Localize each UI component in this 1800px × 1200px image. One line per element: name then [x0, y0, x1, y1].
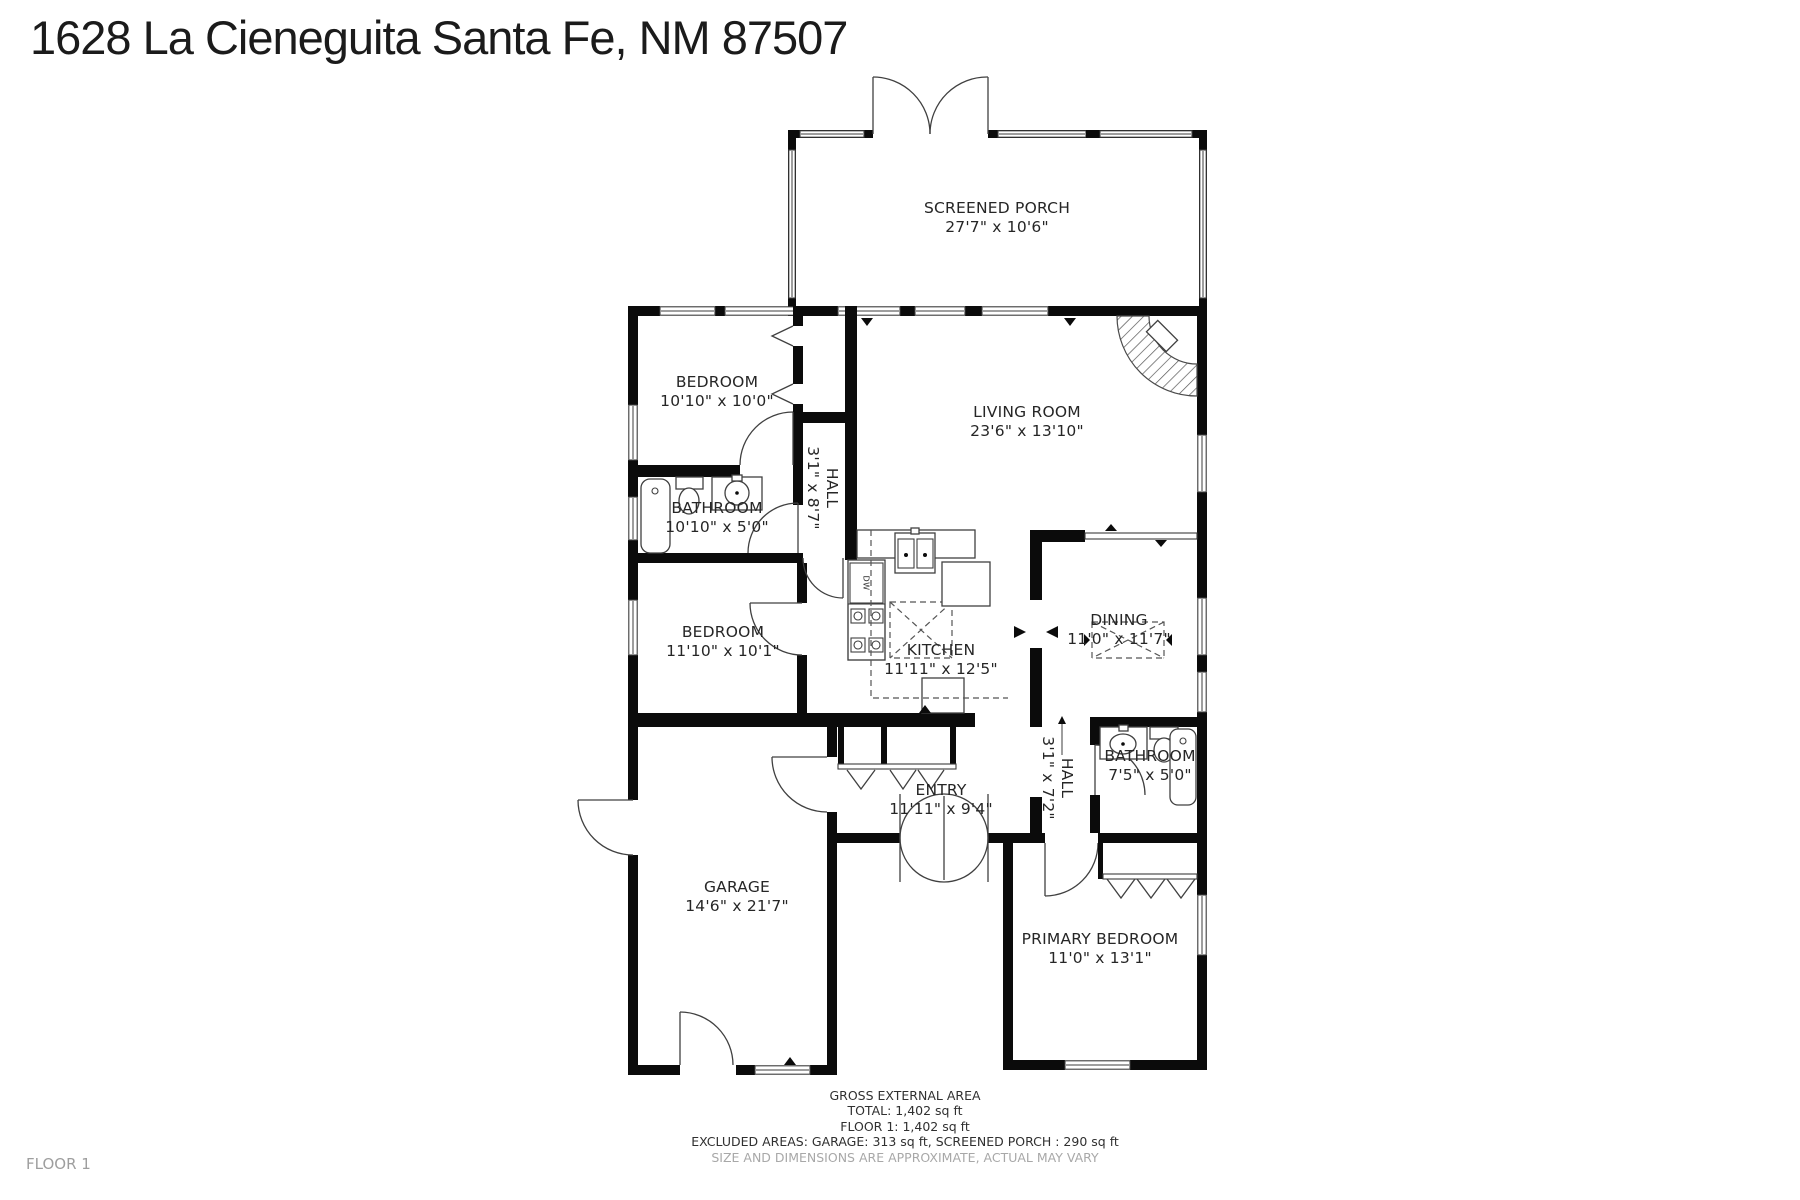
- floorplan-page: 1628 La Cieneguita Santa Fe, NM 87507 SC…: [0, 0, 1800, 1200]
- room-dims: 11'0" x 11'7": [1067, 630, 1171, 649]
- room-dims: 11'11" x 12'5": [884, 660, 998, 679]
- room-dims: 11'0" x 13'1": [1022, 949, 1179, 968]
- room-name: BEDROOM: [666, 623, 780, 642]
- room-label-bathroom-1: BATHROOM 10'10" x 5'0": [665, 499, 769, 537]
- floorplan-drawing: [0, 0, 1800, 1200]
- room-name: LIVING ROOM: [970, 403, 1084, 422]
- room-name: SCREENED PORCH: [924, 199, 1070, 218]
- room-label-living-room: LIVING ROOM 23'6" x 13'10": [970, 403, 1084, 441]
- page-title: 1628 La Cieneguita Santa Fe, NM 87507: [30, 10, 847, 65]
- room-label-kitchen: KITCHEN 11'11" x 12'5": [884, 641, 998, 679]
- room-label-primary-bedroom: PRIMARY BEDROOM 11'0" x 13'1": [1022, 930, 1179, 968]
- room-name: HALL: [822, 446, 841, 529]
- room-dims: 10'10" x 10'0": [660, 392, 774, 411]
- room-label-hall-2: HALL 3'1" x 7'2": [1038, 736, 1076, 819]
- room-name: KITCHEN: [884, 641, 998, 660]
- room-label-screened-porch: SCREENED PORCH 27'7" x 10'6": [924, 199, 1070, 237]
- room-label-bathroom-2: BATHROOM 7'5" x 5'0": [1104, 747, 1195, 785]
- room-name: DINING: [1067, 611, 1171, 630]
- fireplace: [1117, 316, 1197, 396]
- floor-tag: FLOOR 1: [26, 1155, 91, 1173]
- room-dims: 27'7" x 10'6": [924, 218, 1070, 237]
- dishwasher-label: DW: [862, 575, 871, 590]
- room-label-bedroom-1: BEDROOM 10'10" x 10'0": [660, 373, 774, 411]
- room-dims: 10'10" x 5'0": [665, 518, 769, 537]
- room-dims: 3'1" x 7'2": [1038, 736, 1057, 819]
- room-dims: 7'5" x 5'0": [1104, 766, 1195, 785]
- room-label-dining: DINING 11'0" x 11'7": [1067, 611, 1171, 649]
- area-disclaimer: SIZE AND DIMENSIONS ARE APPROXIMATE, ACT…: [691, 1150, 1119, 1165]
- room-name: BATHROOM: [1104, 747, 1195, 766]
- room-dims: 23'6" x 13'10": [970, 422, 1084, 441]
- room-dims: 11'10" x 10'1": [666, 642, 780, 661]
- room-name: BEDROOM: [660, 373, 774, 392]
- room-label-garage: GARAGE 14'6" x 21'7": [685, 878, 789, 916]
- room-name: HALL: [1057, 736, 1076, 819]
- room-dims: 11'11" x 9'4": [889, 800, 993, 819]
- room-name: GARAGE: [685, 878, 789, 897]
- area-total: TOTAL: 1,402 sq ft: [691, 1103, 1119, 1118]
- room-label-bedroom-2: BEDROOM 11'10" x 10'1": [666, 623, 780, 661]
- room-label-entry: ENTRY 11'11" x 9'4": [889, 781, 993, 819]
- area-summary: GROSS EXTERNAL AREA TOTAL: 1,402 sq ft F…: [691, 1088, 1119, 1165]
- porch-double-door: [873, 77, 988, 134]
- room-name: ENTRY: [889, 781, 993, 800]
- kitchen-fixtures: [848, 528, 1008, 713]
- room-name: BATHROOM: [665, 499, 769, 518]
- room-name: PRIMARY BEDROOM: [1022, 930, 1179, 949]
- area-summary-heading: GROSS EXTERNAL AREA: [691, 1088, 1119, 1103]
- room-dims: 14'6" x 21'7": [685, 897, 789, 916]
- area-excluded: EXCLUDED AREAS: GARAGE: 313 sq ft, SCREE…: [691, 1134, 1119, 1149]
- area-floor1: FLOOR 1: 1,402 sq ft: [691, 1119, 1119, 1134]
- room-label-hall-1: HALL 3'1" x 8'7": [803, 446, 841, 529]
- room-dims: 3'1" x 8'7": [803, 446, 822, 529]
